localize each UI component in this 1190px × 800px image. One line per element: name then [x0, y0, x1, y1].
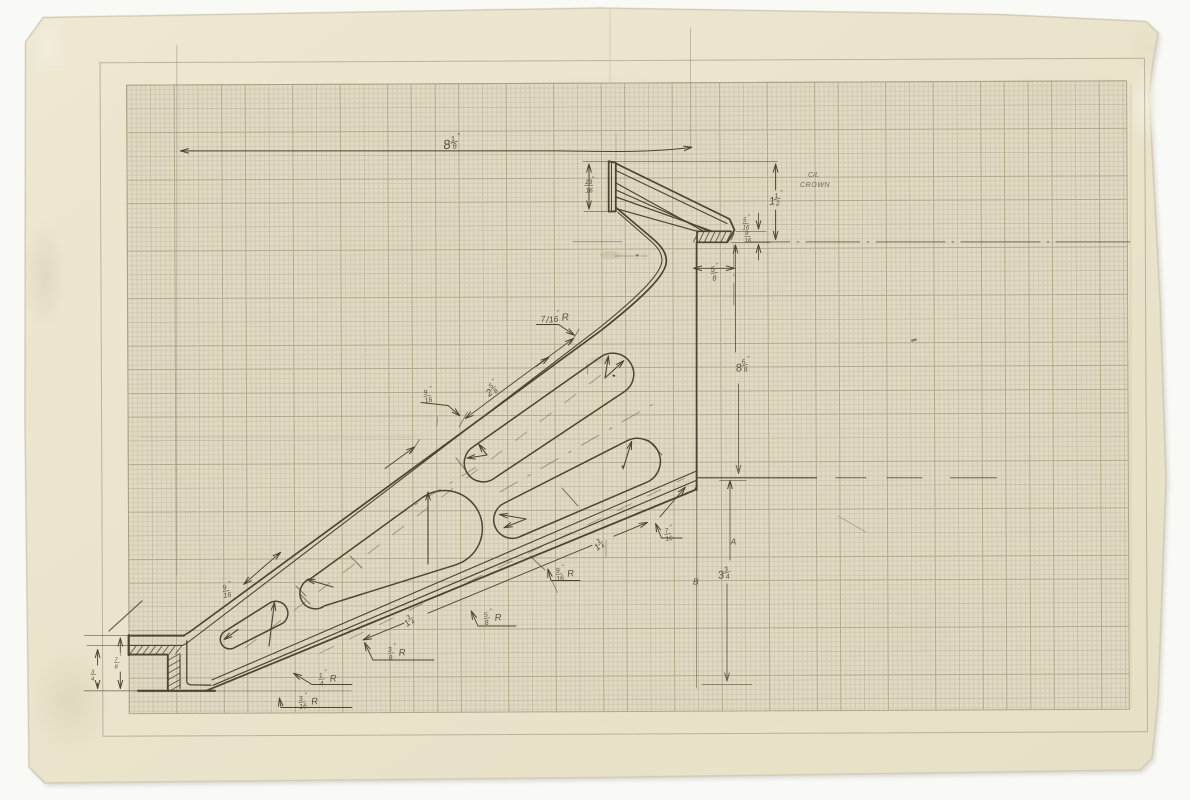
svg-text:16: 16 [586, 188, 594, 195]
svg-text:B: B [693, 577, 699, 587]
svg-text:16: 16 [223, 592, 232, 600]
svg-text:16: 16 [424, 397, 433, 405]
svg-text:R: R [494, 612, 502, 624]
svg-text:C/L: C/L [808, 172, 819, 179]
svg-text:16: 16 [299, 703, 308, 711]
svg-text:CROWN: CROWN [800, 182, 831, 189]
svg-text:R: R [329, 673, 337, 685]
svg-text:16: 16 [745, 239, 752, 245]
svg-text:16: 16 [556, 575, 565, 583]
svg-text:R: R [311, 696, 319, 708]
svg-text:R: R [561, 312, 569, 324]
svg-text:16: 16 [665, 535, 674, 543]
svg-text:4: 4 [91, 677, 94, 683]
svg-text:A: A [730, 537, 737, 547]
svg-text:″: ″ [120, 655, 122, 661]
svg-text:R: R [567, 568, 575, 580]
svg-text:R: R [398, 647, 406, 659]
